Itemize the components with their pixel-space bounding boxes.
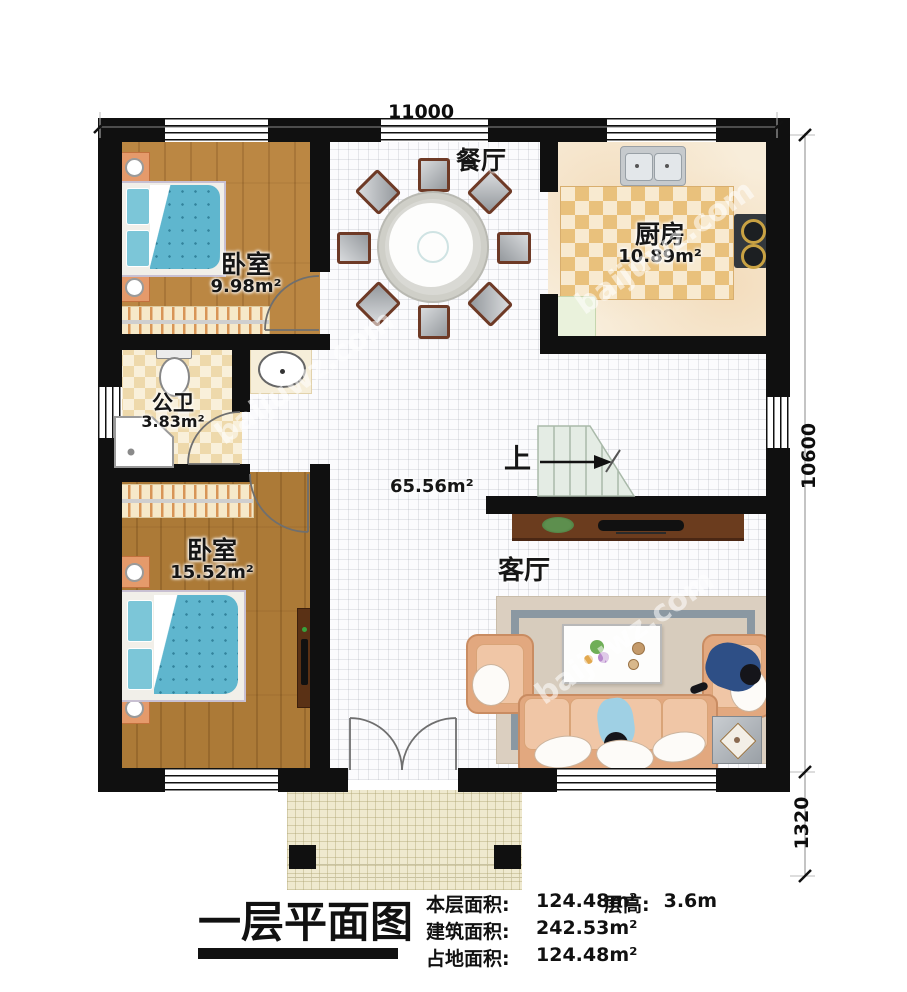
porch (287, 790, 522, 890)
window (98, 386, 122, 440)
floor-height-value: 3.6m (664, 890, 717, 917)
toilet (154, 344, 192, 396)
floor-height-block: 层高: 3.6m (604, 890, 717, 917)
floor-plan-canvas: 11000 10600 1320 餐厅 厨房 10.89m² 卧室 9.98m²… (0, 0, 907, 992)
room-label-bedroom-bottom: 卧室 15.52m² (162, 538, 262, 583)
cup (628, 659, 639, 670)
pillow (127, 648, 153, 690)
pillow (127, 600, 153, 642)
lamp-icon (125, 158, 144, 177)
dining-chair (418, 158, 450, 192)
flower-decor (584, 655, 593, 664)
dim-right-porch: 1320 (791, 788, 813, 858)
wall (98, 464, 250, 482)
stat-row: 占地面积: 124.48m² (426, 944, 637, 971)
coffee-table (562, 624, 662, 684)
wall (310, 118, 330, 272)
wall (458, 768, 556, 792)
porch-column (494, 845, 521, 869)
wall (766, 118, 790, 396)
stat-row: 建筑面积: 242.53m² (426, 917, 637, 944)
wall (310, 464, 330, 792)
person-head (740, 664, 761, 685)
sink-basin (625, 153, 653, 181)
wall (232, 334, 250, 412)
dining-chair (497, 232, 531, 264)
wall (98, 768, 164, 792)
porch-column (289, 845, 316, 869)
wall (486, 496, 790, 514)
table-center-plate (417, 231, 449, 263)
stat-label: 本层面积: (426, 890, 522, 917)
room-label-kitchen: 厨房 10.89m² (602, 222, 718, 267)
nightstand (118, 556, 150, 588)
window (164, 118, 270, 142)
sink-drain (635, 164, 639, 168)
stairs-up-label: 上 (504, 446, 531, 474)
pillow (126, 230, 150, 267)
cutting-board (556, 296, 596, 338)
indicator-dot (302, 627, 307, 632)
porch-step-line (287, 864, 522, 865)
room-label-living: 客厅 (498, 558, 550, 585)
window (556, 768, 718, 792)
stat-value: 242.53m² (536, 917, 637, 944)
plan-title-underline (198, 948, 398, 959)
wall (716, 768, 790, 792)
bed-sheet-fold (154, 595, 206, 694)
window (766, 396, 790, 450)
stat-label: 占地面积: (426, 944, 522, 971)
stat-value: 124.48m² (536, 944, 637, 971)
dining-chair (418, 305, 450, 339)
wall (540, 336, 790, 354)
dim-top-width: 11000 (388, 101, 454, 123)
burner (741, 244, 766, 269)
lamp-icon (125, 278, 144, 297)
wall (98, 334, 330, 350)
tv-console (512, 514, 744, 541)
wall (540, 118, 558, 192)
double-bed (118, 590, 246, 702)
window (606, 118, 718, 142)
pillow (126, 188, 150, 225)
bed-sheet-fold (150, 185, 196, 269)
television (598, 520, 684, 531)
flower-decor (598, 652, 609, 663)
kitchen-sink (620, 146, 686, 186)
burner (741, 219, 766, 244)
room-label-bedroom-top: 卧室 9.98m² (196, 252, 296, 297)
gas-stove (734, 214, 768, 268)
nightstand (118, 152, 150, 182)
sink-drain (665, 164, 669, 168)
basin-drain (280, 369, 285, 374)
cup (632, 642, 645, 655)
window (164, 768, 280, 792)
wardrobe-hangers (116, 484, 254, 518)
stat-label: 建筑面积: (426, 917, 522, 944)
side-table (712, 716, 762, 764)
side-table-dot (734, 737, 740, 743)
tv-stand (616, 532, 666, 534)
hall-area-label: 65.56m² (390, 478, 474, 497)
plan-title: 一层平面图 (198, 888, 413, 950)
throw-pillow (472, 664, 510, 706)
dim-right-main: 10600 (798, 411, 820, 501)
lamp-icon (125, 563, 144, 582)
potted-plant (542, 517, 574, 533)
room-label-dining: 餐厅 (456, 148, 506, 174)
wall (98, 438, 122, 792)
floor-height-label: 层高: (604, 890, 650, 917)
television (301, 639, 308, 685)
room-label-bathroom: 公卫 3.83m² (128, 392, 218, 431)
dining-chair (337, 232, 371, 264)
porch-step-line (287, 877, 522, 878)
